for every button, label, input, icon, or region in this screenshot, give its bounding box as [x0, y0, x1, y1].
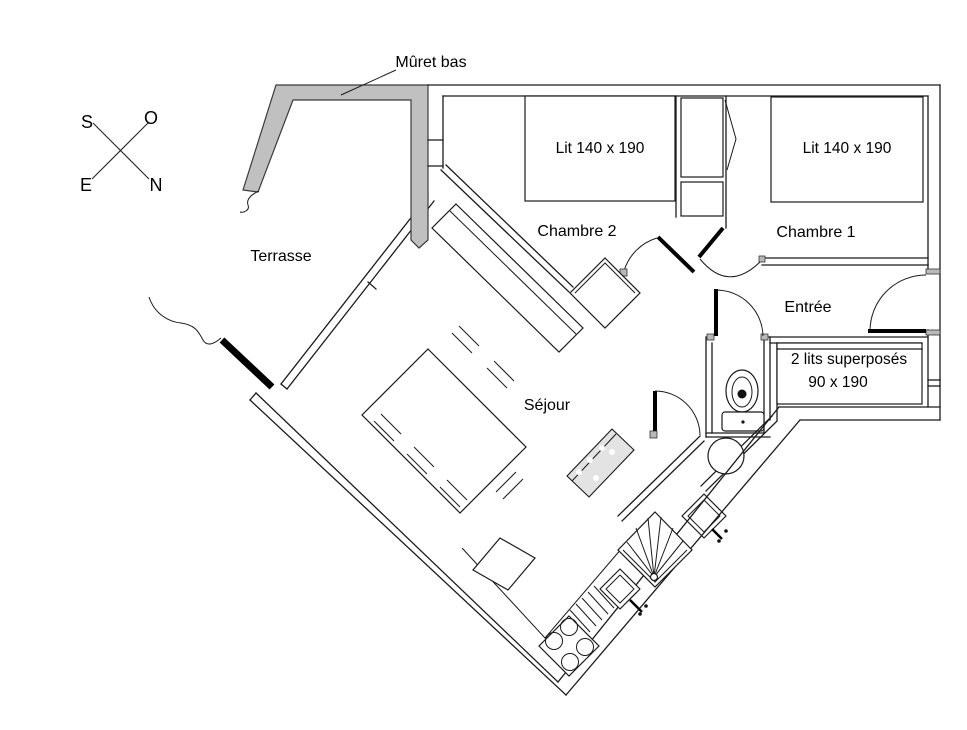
- toilet: [722, 370, 764, 431]
- wc-door: [716, 289, 763, 336]
- chambre1-door: [699, 228, 760, 277]
- bunk-label-line1: 2 lits superposés: [791, 351, 908, 368]
- column-cabinet: [570, 258, 640, 328]
- entree-label: Entrée: [784, 299, 831, 316]
- entrance-door: [868, 275, 926, 331]
- muret-label: Mûret bas: [395, 54, 466, 71]
- chambre2-label: Chambre 2: [537, 223, 616, 240]
- compass-rose-icon: S O E N: [80, 108, 163, 195]
- compass-east: E: [80, 175, 92, 195]
- sejour-furniture: [362, 204, 634, 513]
- dishwasher: [473, 538, 535, 590]
- bathroom-door: [650, 391, 700, 438]
- closet-block: [676, 96, 736, 228]
- kitchen: [462, 512, 692, 676]
- dining-table: [362, 349, 526, 513]
- bathroom-area: [618, 416, 777, 543]
- kitchen-exterior-walls: [250, 393, 800, 695]
- chambre2-door: [620, 237, 694, 276]
- compass-south: S: [81, 112, 93, 132]
- washbasin: [708, 438, 744, 474]
- chambre1-south-wall: [759, 256, 928, 265]
- bunk-label-line2: 90 x 190: [808, 374, 868, 391]
- terrasse-label: Terrasse: [250, 248, 311, 265]
- floorplan-drawing: S O E N Mûret bas: [0, 0, 967, 730]
- terrace-edge: [149, 191, 272, 387]
- floorplan-canvas: S O E N Mûret bas: [0, 0, 967, 730]
- compass-north: N: [150, 175, 163, 195]
- chambre1-bed-label: Lit 140 x 190: [803, 140, 892, 157]
- sliding-door: [222, 340, 272, 387]
- chambre2-bed-label: Lit 140 x 190: [556, 140, 645, 157]
- wc-room: [706, 334, 770, 437]
- chambre1-label: Chambre 1: [776, 224, 855, 241]
- sejour-label: Séjour: [524, 397, 571, 414]
- compass-west: O: [144, 108, 158, 128]
- shower: [618, 512, 692, 587]
- kitchen-sink: [600, 569, 648, 616]
- chambre2-west-wall: [428, 96, 443, 168]
- muret-bas-wall: [243, 85, 428, 248]
- kitchen-bar: [567, 429, 634, 497]
